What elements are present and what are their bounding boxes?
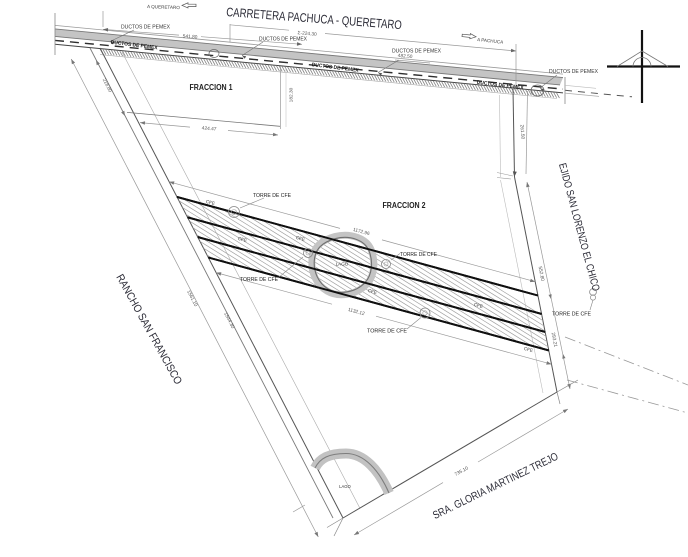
svg-text:DUCTOS DE PEMEX: DUCTOS DE PEMEX — [121, 25, 171, 31]
svg-text:DUCTOS DE PEMEX: DUCTOS DE PEMEX — [392, 49, 442, 55]
svg-text:261.50: 261.50 — [518, 124, 525, 139]
svg-text:LAGO: LAGO — [339, 484, 351, 489]
svg-text:TORRE DE CFE: TORRE DE CFE — [552, 312, 592, 318]
svg-text:FRACCION 1: FRACCION 1 — [190, 83, 233, 92]
svg-text:DUCTOS DE PEMEX: DUCTOS DE PEMEX — [549, 69, 599, 75]
svg-text:TORRE DE CFE: TORRE DE CFE — [367, 329, 408, 335]
svg-text:TORRE DE CFE: TORRE DE CFE — [400, 252, 438, 258]
svg-text:FRACCION 2: FRACCION 2 — [383, 201, 426, 210]
svg-text:TORRE DE CFE: TORRE DE CFE — [240, 277, 279, 283]
svg-text:182.30: 182.30 — [289, 87, 295, 102]
svg-text:DUCTOS DE PEMEX: DUCTOS DE PEMEX — [259, 37, 308, 43]
svg-text:TORRE DE CFE: TORRE DE CFE — [253, 193, 292, 199]
svg-text:LAGO: LAGO — [336, 262, 349, 267]
svg-text:541.80: 541.80 — [183, 33, 198, 40]
